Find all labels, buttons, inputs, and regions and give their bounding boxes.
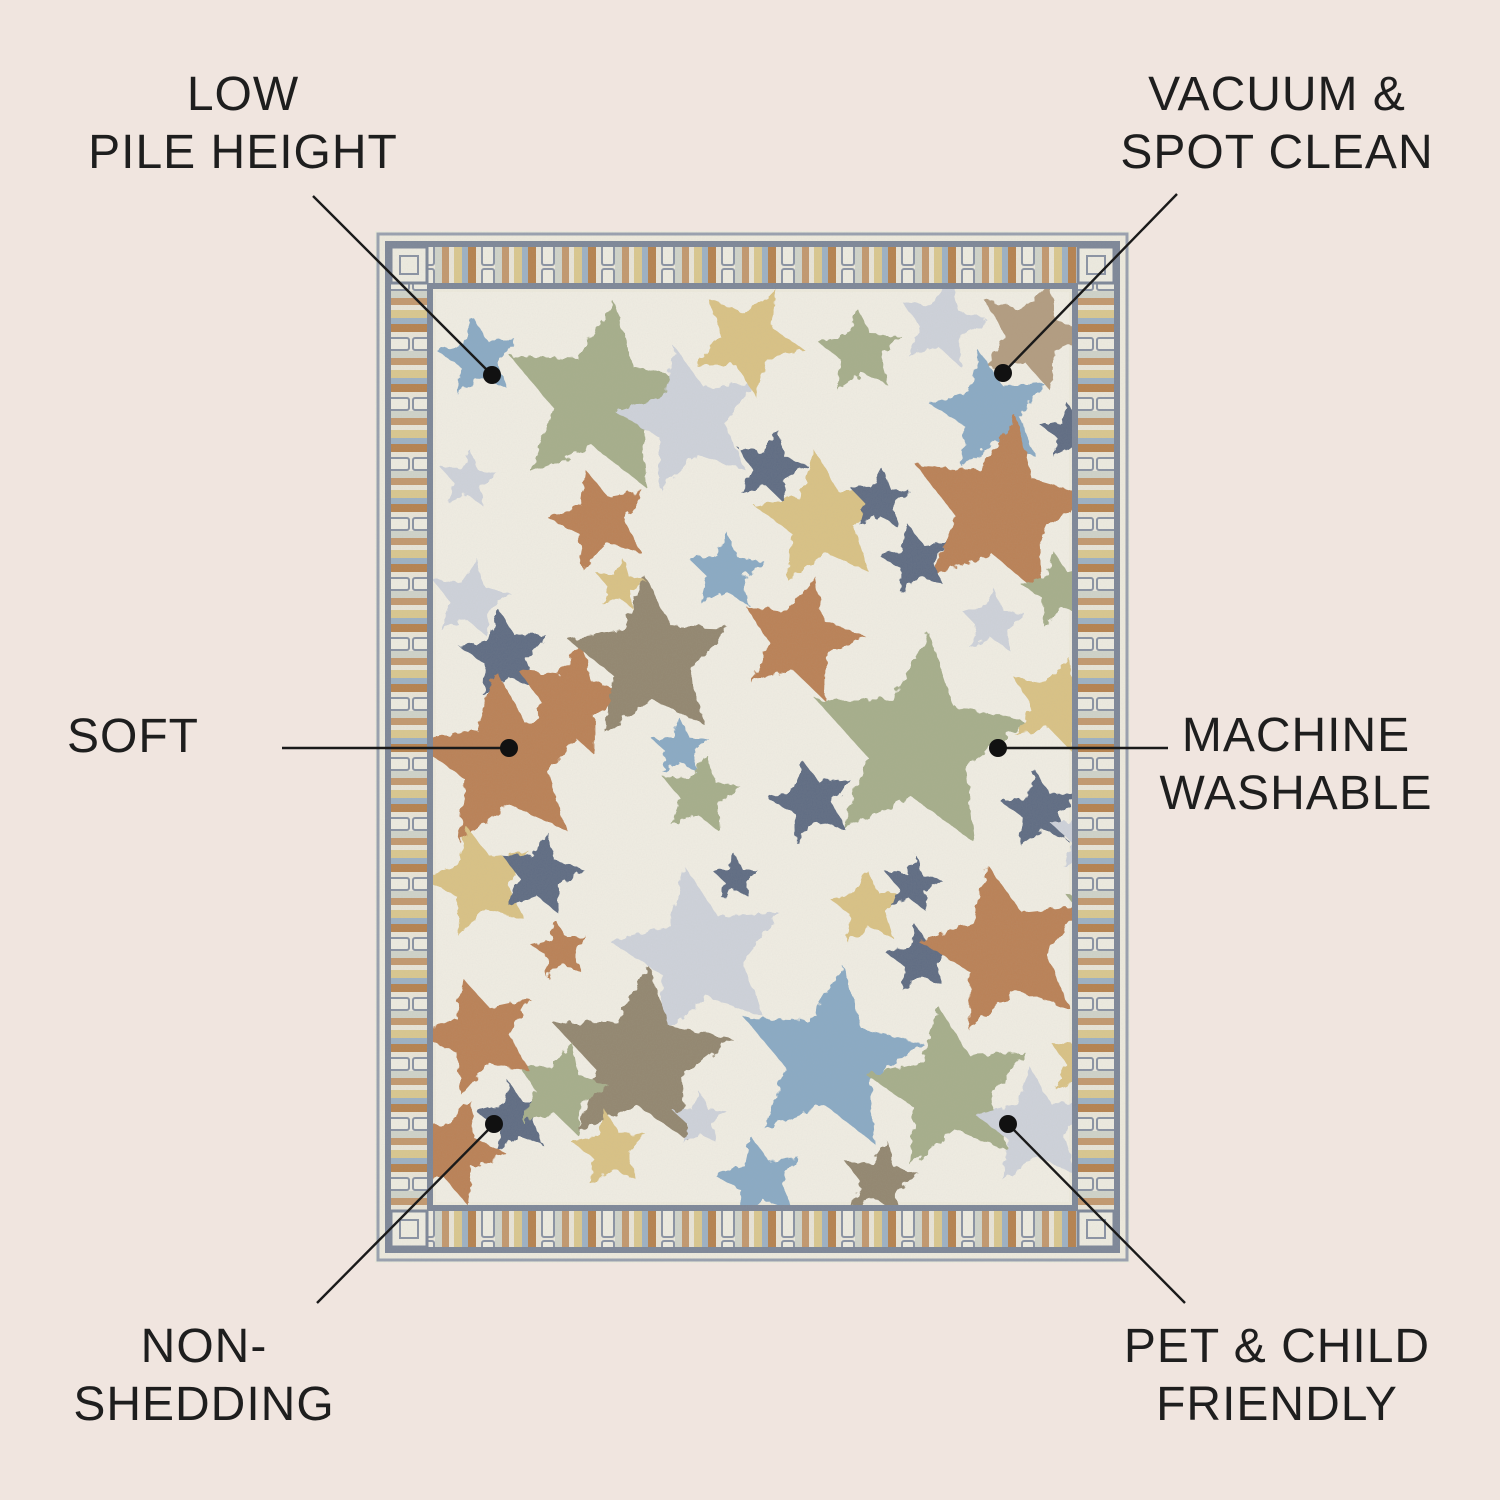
rug-texture bbox=[375, 231, 1130, 1263]
feature-label-machine-washable: MACHINE WASHABLE bbox=[1160, 707, 1433, 823]
feature-label-soft: SOFT bbox=[67, 708, 199, 766]
product-feature-image: LOW PILE HEIGHT VACUUM & SPOT CLEAN SOFT… bbox=[0, 0, 1500, 1500]
label-line: WASHABLE bbox=[1160, 765, 1433, 823]
label-line: PET & CHILD bbox=[1124, 1318, 1430, 1376]
label-line: PILE HEIGHT bbox=[88, 124, 398, 182]
rug-image bbox=[375, 231, 1130, 1263]
label-line: NON- bbox=[73, 1318, 334, 1376]
label-line: SPOT CLEAN bbox=[1120, 124, 1433, 182]
label-line: LOW bbox=[88, 66, 398, 124]
label-line: MACHINE bbox=[1160, 707, 1433, 765]
label-line: SOFT bbox=[67, 708, 199, 766]
label-line: SHEDDING bbox=[73, 1376, 334, 1434]
feature-label-non-shedding: NON- SHEDDING bbox=[73, 1318, 334, 1434]
label-line: FRIENDLY bbox=[1124, 1376, 1430, 1434]
feature-label-pet-child-friendly: PET & CHILD FRIENDLY bbox=[1124, 1318, 1430, 1434]
feature-label-vacuum-spot-clean: VACUUM & SPOT CLEAN bbox=[1120, 66, 1433, 182]
label-line: VACUUM & bbox=[1120, 66, 1433, 124]
feature-label-low-pile-height: LOW PILE HEIGHT bbox=[88, 66, 398, 182]
